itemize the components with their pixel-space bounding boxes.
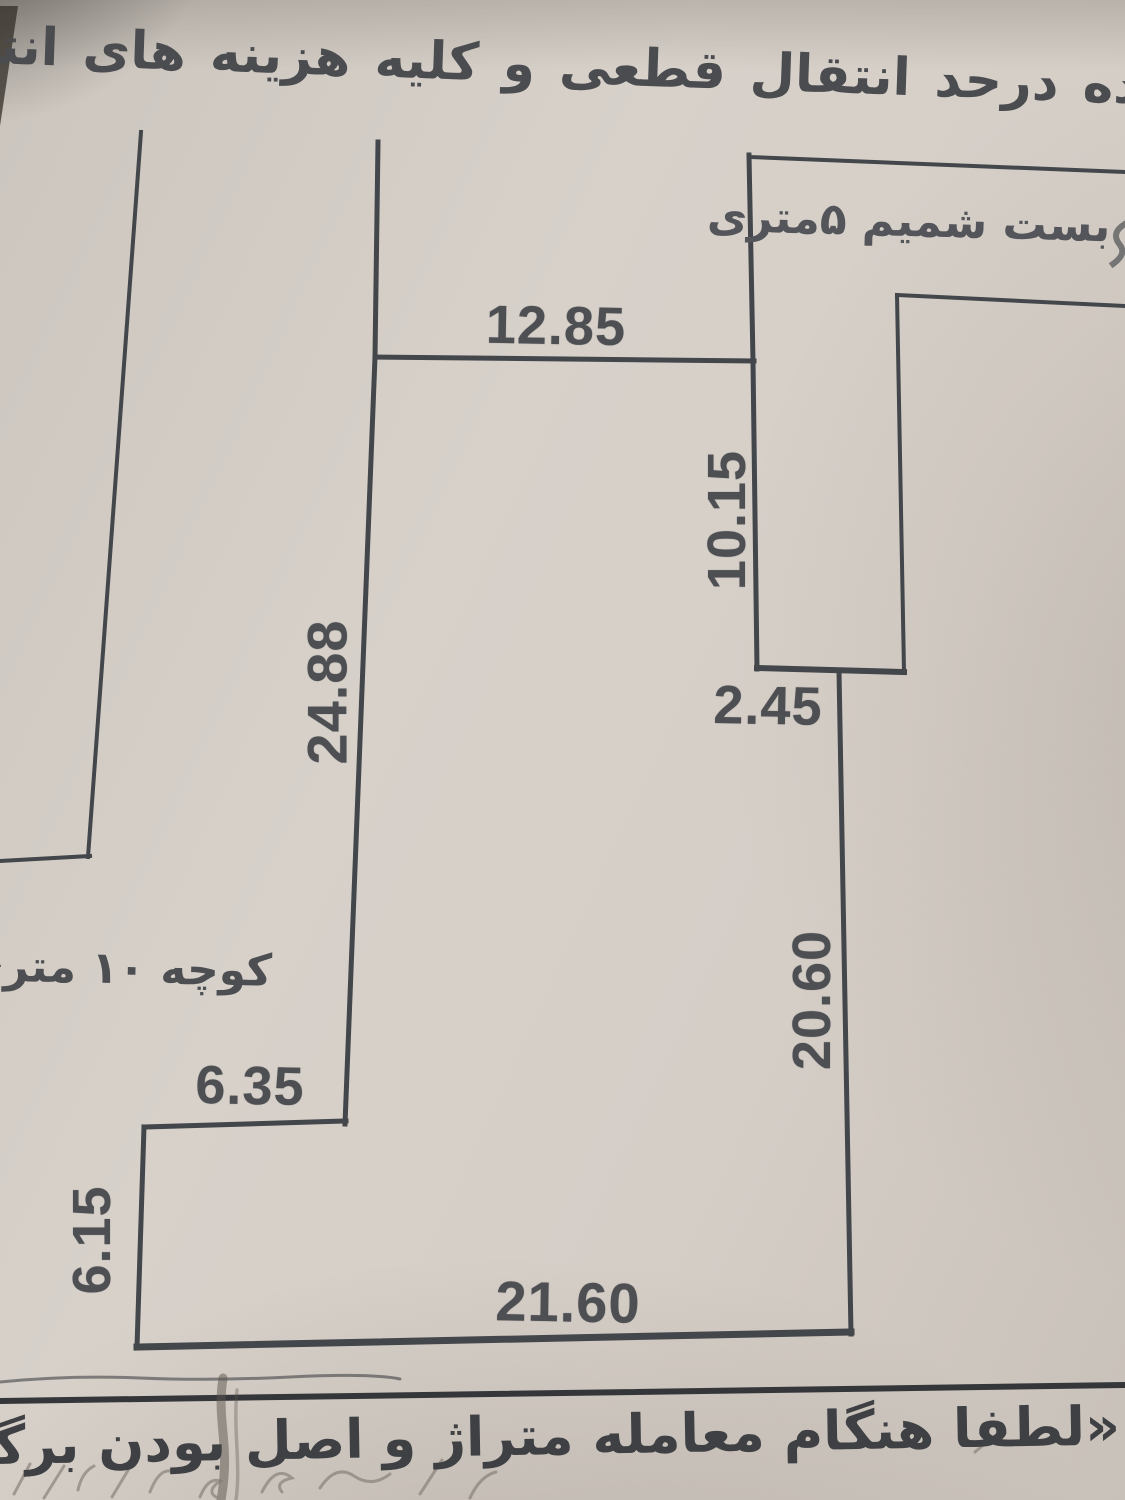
dimension-left-edge: 24.88 [295,619,360,764]
boundary-notch-6-35 [144,1121,346,1127]
dimension-notch-height: 6.15 [61,1185,123,1294]
boundary-notch-6-15 [137,1127,144,1347]
clipped-text-fragment [1113,224,1125,264]
deadend-street-label: بست شمیم ۵متری [707,191,1112,253]
dimension-top-edge: 12.85 [485,294,626,358]
dimension-right-upper-edge: 10.15 [696,450,758,590]
left-neighbor-edge [88,132,141,857]
scanned-plot-document: شده درحد انتقال قطعی و کلیه هزینه های ان… [0,0,1125,1500]
dimension-right-lower-edge: 20.60 [781,930,843,1070]
footer-rule-faint [0,1375,400,1382]
dimension-right-step: 2.45 [713,674,823,738]
right-neighbor-edge [897,295,904,671]
dimension-notch-width: 6.35 [195,1054,305,1118]
boundary-top-12-85 [375,357,754,361]
left-neighbor-bottom [0,856,90,861]
boundary-bottom-21-60 [137,1332,851,1347]
dimension-bottom-edge: 21.60 [495,1268,641,1336]
right-neighbor-top [897,295,1125,306]
deadend-top-edge [749,157,1125,172]
left-alley-label: کوچه ۱۰ متری [0,938,272,996]
boundary-step-2-45 [757,668,904,672]
